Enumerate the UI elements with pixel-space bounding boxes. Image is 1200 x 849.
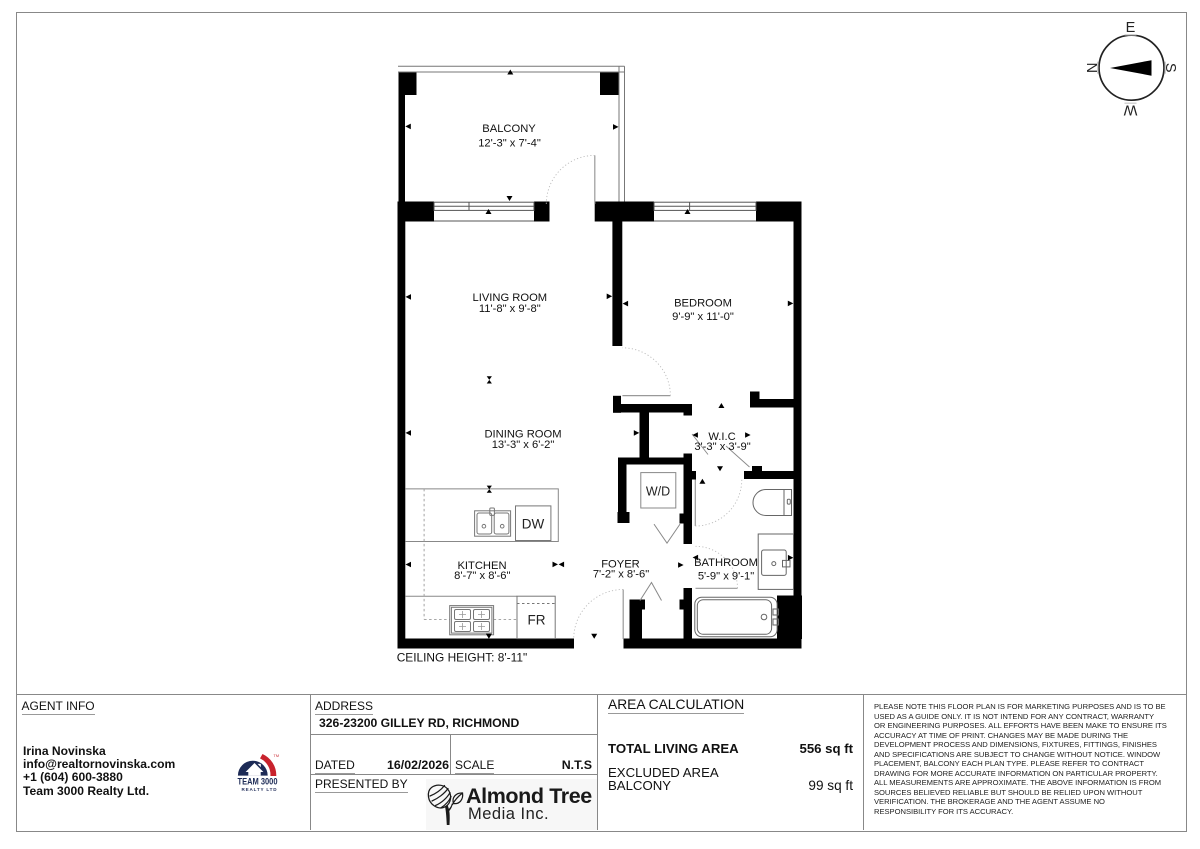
svg-text:TEAM 3000: TEAM 3000 xyxy=(238,777,278,787)
svg-text:REALTY LTD: REALTY LTD xyxy=(242,787,278,792)
svg-text:TM: TM xyxy=(274,754,279,758)
